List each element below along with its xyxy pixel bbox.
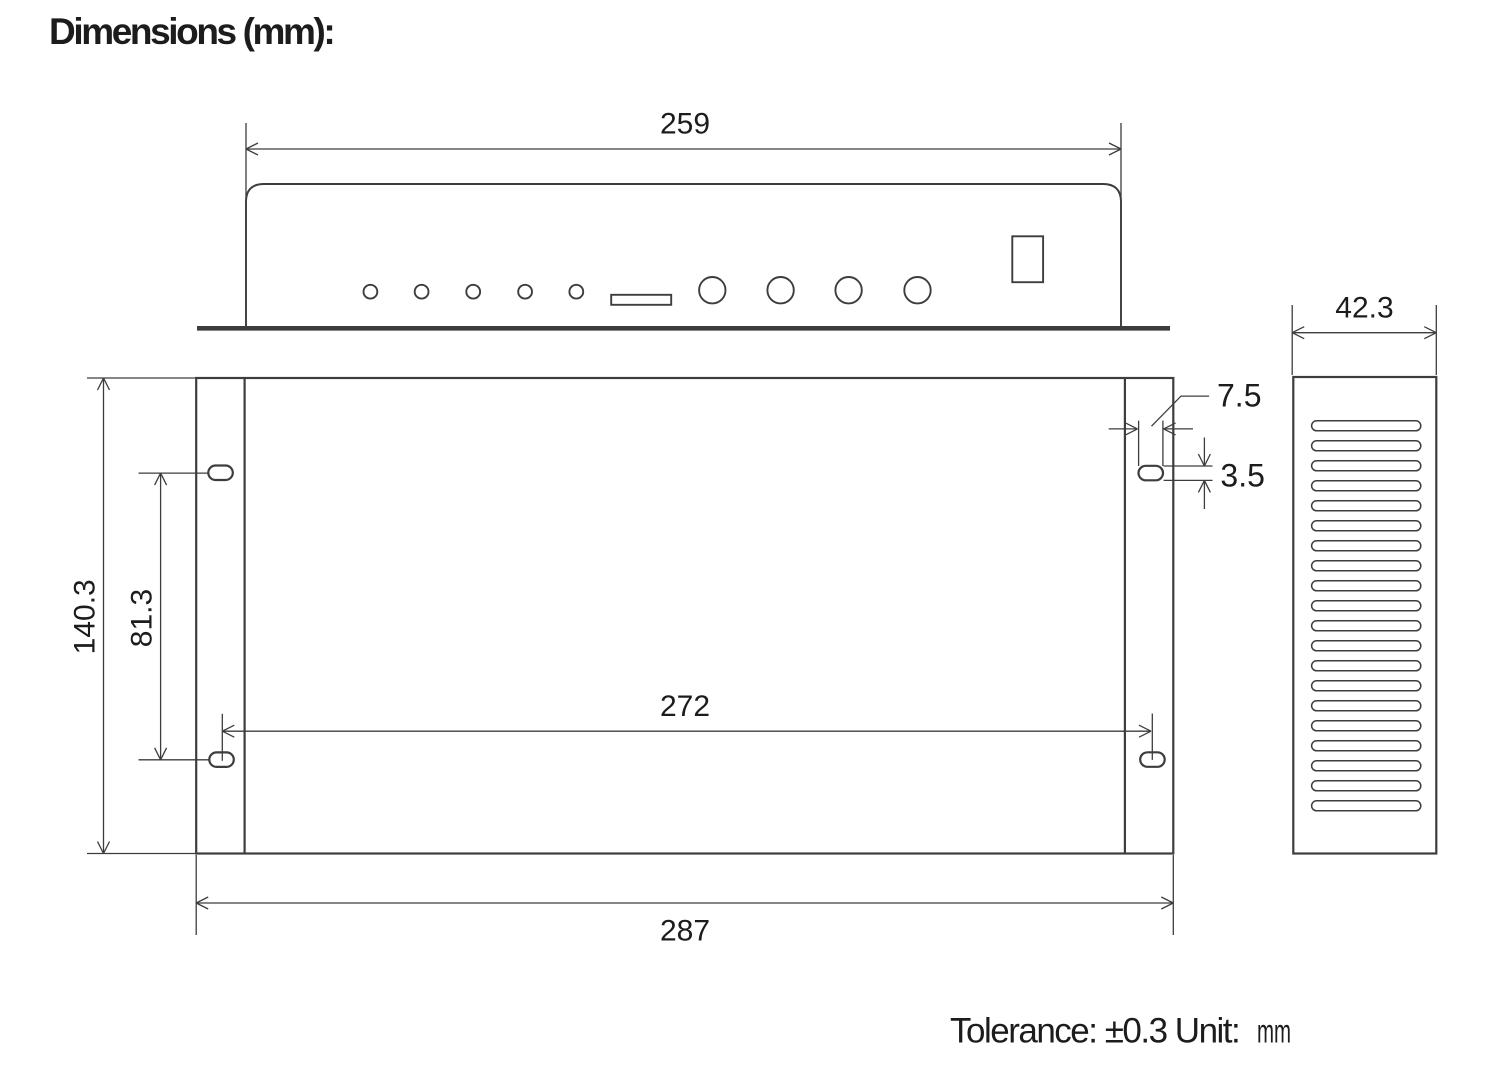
svg-text:7.5: 7.5 (1217, 377, 1261, 413)
svg-text:287: 287 (660, 915, 710, 948)
svg-text:42.3: 42.3 (1335, 291, 1393, 324)
svg-text:140.3: 140.3 (69, 579, 102, 654)
svg-text:Dimensions (mm):: Dimensions (mm): (49, 11, 333, 52)
svg-text:81.3: 81.3 (126, 589, 159, 647)
svg-text:3.5: 3.5 (1220, 457, 1264, 493)
svg-text:Tolerance: ±0.3 Unit:: Tolerance: ±0.3 Unit: (950, 1012, 1239, 1051)
svg-text:259: 259 (660, 108, 710, 141)
svg-text:mm: mm (1257, 1012, 1291, 1049)
svg-text:272: 272 (660, 690, 710, 723)
